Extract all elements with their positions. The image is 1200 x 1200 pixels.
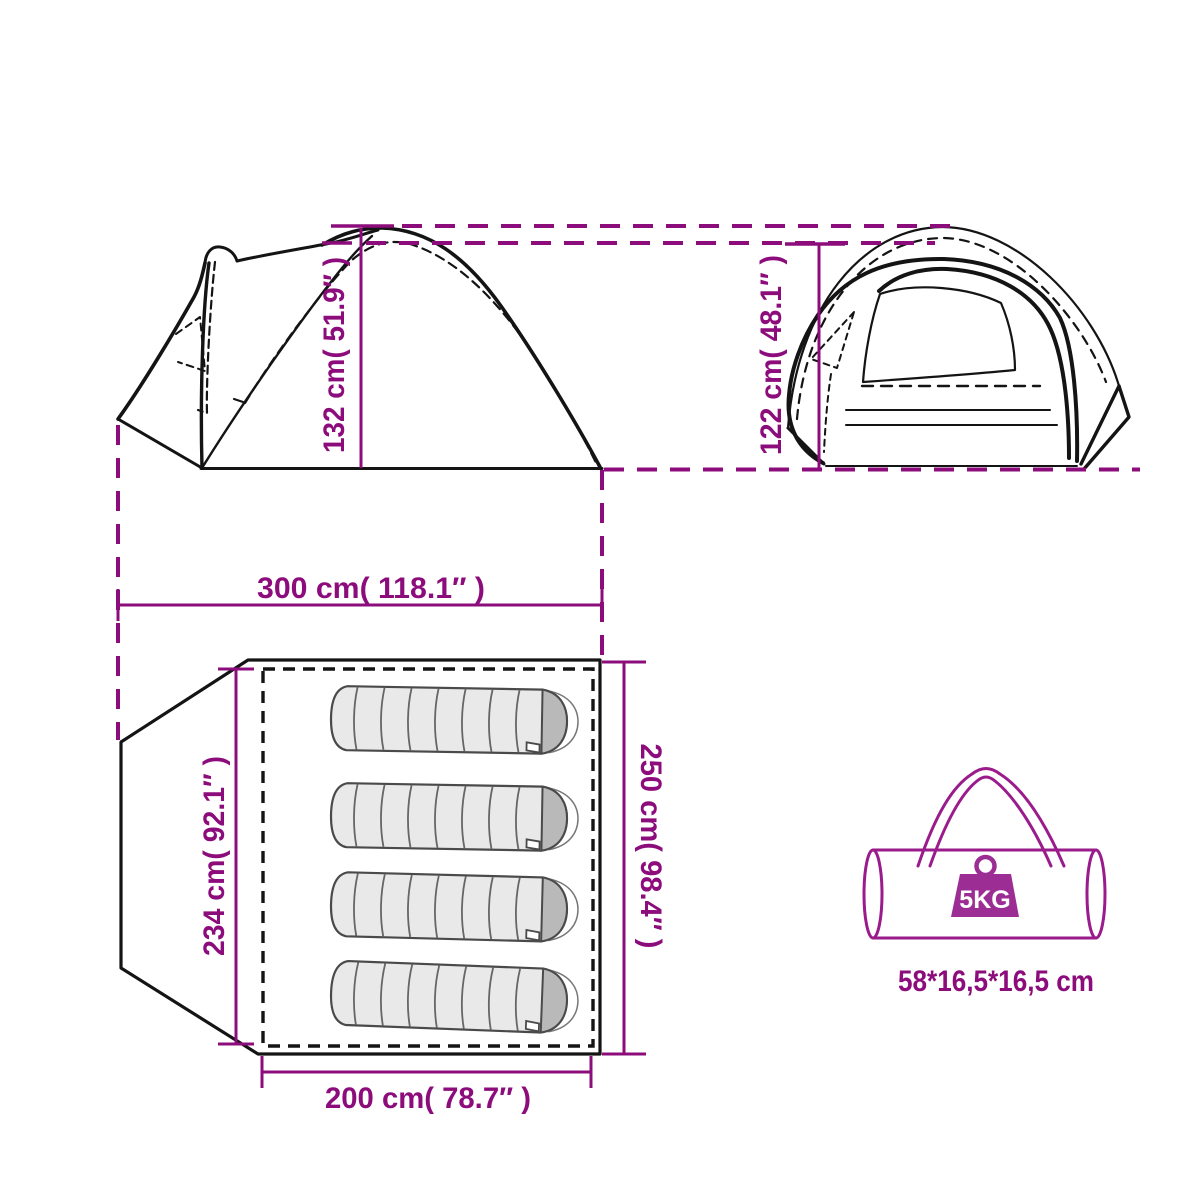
svg-text:132 cm( 51.9″ ): 132 cm( 51.9″ ) — [318, 257, 351, 453]
svg-text:58*16,5*16,5 cm: 58*16,5*16,5 cm — [898, 965, 1094, 998]
svg-text:250 cm( 98.4″ ): 250 cm( 98.4″ ) — [634, 744, 667, 949]
svg-text:122 cm( 48.1″ ): 122 cm( 48.1″ ) — [755, 255, 788, 455]
svg-text:234 cm( 92.1″ ): 234 cm( 92.1″ ) — [198, 756, 231, 956]
svg-text:5KG: 5KG — [959, 886, 1010, 914]
svg-text:200 cm( 78.7″ ): 200 cm( 78.7″ ) — [325, 1082, 531, 1115]
svg-text:300 cm( 118.1″ ): 300 cm( 118.1″ ) — [257, 572, 485, 605]
